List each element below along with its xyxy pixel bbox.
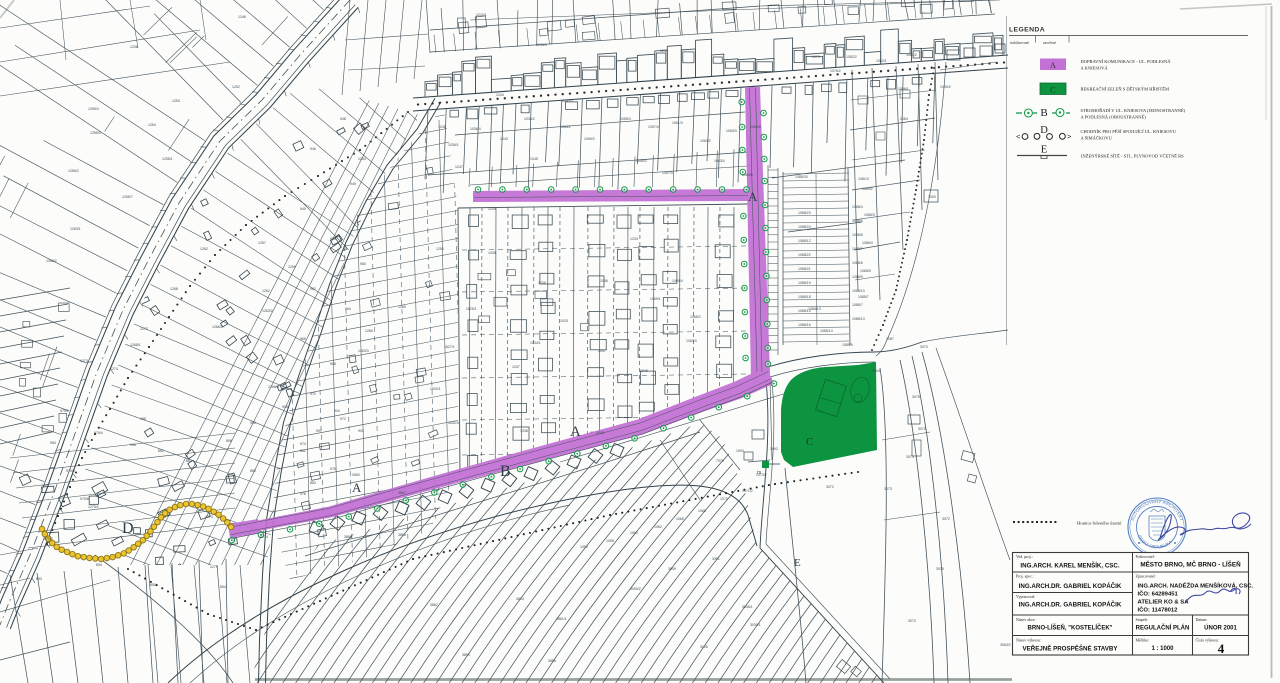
svg-text:1087: 1087 (886, 337, 894, 341)
svg-text:3072: 3072 (826, 485, 834, 489)
svg-text:1088/13: 1088/13 (852, 317, 865, 321)
svg-text:3049: 3049 (668, 567, 676, 571)
svg-text:1093: 1093 (736, 449, 744, 453)
svg-text:1045: 1045 (530, 157, 538, 161)
svg-text:1088/7: 1088/7 (852, 247, 863, 251)
svg-text:1263/3: 1263/3 (358, 349, 369, 353)
svg-text:1085/9: 1085/9 (842, 343, 853, 347)
svg-text:3072: 3072 (942, 517, 950, 521)
svg-text:3060: 3060 (352, 473, 360, 477)
svg-text:1263/2: 1263/2 (262, 309, 273, 313)
svg-text:908: 908 (282, 405, 288, 409)
svg-text:7070: 7070 (716, 459, 724, 463)
svg-text:1085/4: 1085/4 (862, 241, 873, 245)
svg-text:Vypracoval:: Vypracoval: (1016, 594, 1035, 599)
svg-text:Název výkresu:: Název výkresu: (1016, 638, 1041, 643)
svg-text:1055/1: 1055/1 (560, 125, 571, 129)
svg-text:1274: 1274 (110, 367, 118, 371)
svg-text:894: 894 (96, 563, 102, 567)
svg-text:1063/3: 1063/3 (726, 129, 737, 133)
svg-text:A: A (748, 189, 758, 204)
svg-text:1081/2: 1081/2 (906, 53, 917, 57)
svg-text:1275/1: 1275/1 (88, 505, 99, 509)
svg-text:1249: 1249 (488, 207, 496, 211)
svg-text:854: 854 (220, 585, 226, 589)
svg-text:3073: 3073 (884, 487, 892, 491)
svg-text:1268/4: 1268/4 (268, 385, 279, 389)
svg-text:A: A (352, 480, 362, 495)
svg-text:1047: 1047 (598, 349, 606, 353)
svg-text:1090: 1090 (928, 195, 936, 199)
svg-text:1088/19: 1088/19 (798, 281, 811, 285)
svg-text:3859: 3859 (462, 653, 470, 657)
svg-text:4: 4 (1218, 641, 1225, 656)
svg-text:1084: 1084 (900, 117, 908, 121)
svg-text:3070: 3070 (918, 427, 926, 431)
svg-text:1081/3: 1081/3 (858, 177, 869, 181)
svg-text:1063/4: 1063/4 (714, 159, 725, 163)
svg-text:ATELIER KO & SA: ATELIER KO & SA (1138, 600, 1190, 606)
svg-text:959: 959 (330, 237, 336, 241)
svg-text:B: B (500, 463, 511, 480)
svg-text:898: 898 (226, 439, 232, 443)
svg-text:960: 960 (360, 262, 366, 266)
svg-text:883: 883 (310, 481, 316, 485)
svg-text:949: 949 (350, 182, 356, 186)
svg-text:1088/4: 1088/4 (852, 205, 863, 209)
svg-text:972: 972 (340, 417, 346, 421)
svg-text:C: C (806, 436, 813, 448)
svg-text:1088/10: 1088/10 (852, 289, 865, 293)
svg-text:DOPRAVNÍ KOMUNIKACE - UL. PODL: DOPRAVNÍ KOMUNIKACE - UL. PODLESNÁ (1081, 59, 1172, 64)
svg-text:996: 996 (130, 443, 136, 447)
svg-text:1262: 1262 (200, 247, 208, 251)
svg-text:INŽENÝRSKÉ SÍTĚ - STL. PLYNOVO: INŽENÝRSKÉ SÍTĚ - STL. PLYNOVOD VČETNĚ R… (1081, 154, 1184, 159)
svg-text:969/1: 969/1 (872, 369, 881, 373)
svg-text:D: D (122, 520, 134, 537)
svg-text:979/4: 979/4 (94, 431, 103, 435)
svg-text:3078: 3078 (912, 395, 920, 399)
svg-text:850: 850 (150, 583, 156, 587)
svg-text:1065/5: 1065/5 (860, 269, 871, 273)
svg-text:1627/1: 1627/1 (444, 345, 455, 349)
svg-text:1085/14: 1085/14 (820, 329, 833, 333)
svg-text:978: 978 (300, 492, 306, 496)
svg-text:1632/3: 1632/3 (448, 421, 459, 425)
svg-text:1057/4: 1057/4 (648, 125, 659, 129)
svg-text:MĚSTO BRNO, MČ BRNO - LÍŠEŇ: MĚSTO BRNO, MČ BRNO - LÍŠEŇ (1140, 560, 1241, 569)
svg-text:3863: 3863 (516, 597, 524, 601)
svg-text:1250: 1250 (358, 157, 366, 161)
svg-text:1055/3: 1055/3 (620, 117, 631, 121)
svg-text:1244: 1244 (496, 93, 504, 97)
svg-text:REGULAČNÍ PLÁN: REGULAČNÍ PLÁN (1136, 624, 1190, 632)
svg-text:1036: 1036 (538, 281, 546, 285)
svg-text:979/5: 979/5 (66, 469, 75, 473)
svg-text:904: 904 (334, 409, 340, 413)
svg-text:1034/2: 1034/2 (524, 117, 535, 121)
svg-text:Stupeň:: Stupeň: (1136, 617, 1148, 622)
svg-text:962: 962 (310, 287, 316, 291)
svg-text:1247: 1247 (455, 165, 463, 169)
svg-text:1035: 1035 (488, 251, 496, 255)
svg-text:879/3: 879/3 (44, 537, 53, 541)
svg-text:Pořizovatel:: Pořizovatel: (1136, 554, 1155, 559)
svg-text:1070: 1070 (720, 497, 728, 501)
svg-text:CHODNÍK PRO PĚŠÍ SPOJUJÍCÍ UL.: CHODNÍK PRO PĚŠÍ SPOJUJÍCÍ UL. KNIESOVU (1081, 129, 1177, 134)
svg-text:3862: 3862 (430, 603, 438, 607)
svg-text:1274: 1274 (260, 535, 268, 539)
svg-text:3063/2: 3063/2 (1000, 643, 1011, 647)
svg-text:1632/1: 1632/1 (430, 387, 441, 391)
svg-text:1262: 1262 (262, 289, 270, 293)
svg-text:1069/1: 1069/1 (650, 297, 661, 301)
svg-text:>: > (1067, 132, 1072, 141)
svg-text:ING.ARCH. KAREL MENŠÍK, CSC.: ING.ARCH. KAREL MENŠÍK, CSC. (1020, 562, 1120, 570)
svg-text:3070: 3070 (908, 619, 916, 623)
svg-text:Zpracovatel:: Zpracovatel: (1136, 574, 1156, 579)
svg-text:1256/2: 1256/2 (68, 169, 79, 173)
svg-text:1085/3: 1085/3 (864, 213, 875, 217)
svg-text:1069/4: 1069/4 (672, 279, 683, 283)
svg-text:1257: 1257 (258, 241, 266, 245)
svg-text:905: 905 (250, 421, 256, 425)
svg-text:1088/18: 1088/18 (798, 295, 811, 299)
svg-text:1088/22: 1088/22 (798, 253, 811, 257)
svg-text:3866: 3866 (398, 533, 406, 537)
svg-text:1082/2: 1082/2 (846, 55, 857, 59)
svg-text:1263/1: 1263/1 (70, 227, 81, 231)
svg-text:1236: 1236 (130, 45, 138, 49)
svg-text:1085/13: 1085/13 (808, 307, 821, 311)
svg-text:1049: 1049 (640, 369, 648, 373)
svg-text:1243/3: 1243/3 (562, 99, 573, 103)
svg-text:907: 907 (316, 429, 322, 433)
svg-text:3868: 3868 (344, 535, 352, 539)
svg-text:1266: 1266 (365, 329, 373, 333)
svg-text:893: 893 (36, 577, 42, 581)
svg-text:1063/8: 1063/8 (750, 125, 761, 129)
svg-text:1233: 1233 (630, 237, 638, 241)
svg-text:A: A (1050, 60, 1057, 70)
svg-text:1043: 1043 (500, 137, 508, 141)
svg-text:1046: 1046 (600, 279, 608, 283)
svg-text:Měřítko:: Měřítko: (1136, 638, 1150, 643)
svg-text:ING.ARCH.DR. GABRIEL KOPÁČIK: ING.ARCH.DR. GABRIEL KOPÁČIK (1019, 602, 1122, 609)
svg-text:1259: 1259 (288, 265, 296, 269)
svg-text:1255/7: 1255/7 (122, 195, 133, 199)
svg-text:STROMOŘADÍ V UL. KNIESOVA (JED: STROMOŘADÍ V UL. KNIESOVA (JEDNOSTRANNÉ) (1081, 108, 1186, 113)
svg-text:1268/1: 1268/1 (130, 343, 141, 347)
svg-text:1076/2: 1076/2 (830, 69, 841, 73)
svg-text:1063/2: 1063/2 (700, 139, 711, 143)
svg-text:VEŘEJNĚ PROSPĚŠNÉ STAVBY: VEŘEJNĚ PROSPĚŠNÉ STAVBY (1022, 645, 1118, 653)
svg-text:3861/1: 3861/1 (556, 617, 567, 621)
svg-text:1088/24: 1088/24 (798, 225, 811, 229)
svg-text:1068: 1068 (698, 509, 706, 513)
svg-text:1273: 1273 (205, 515, 213, 519)
svg-text:Název akce:: Název akce: (1016, 617, 1036, 622)
svg-text:1061/3: 1061/3 (672, 121, 683, 125)
svg-text:1090/2: 1090/2 (940, 85, 951, 89)
svg-text:IČO: 11478012: IČO: 11478012 (1138, 607, 1179, 614)
svg-text:1058: 1058 (606, 539, 614, 543)
svg-text:stabilizované: stabilizované (1010, 41, 1029, 45)
svg-text:1088/12: 1088/12 (798, 239, 811, 243)
svg-text:1048: 1048 (596, 431, 604, 435)
svg-text:navržené: navržené (1043, 41, 1056, 45)
svg-text:940: 940 (300, 207, 306, 211)
svg-text:1088/16: 1088/16 (798, 323, 811, 327)
svg-text:B: B (1040, 107, 1047, 119)
svg-text:1255/1: 1255/1 (162, 157, 173, 161)
svg-text:1038: 1038 (520, 429, 528, 433)
svg-text:1265: 1265 (398, 305, 406, 309)
svg-text:A ŠIMÁČKOVU: A ŠIMÁČKOVU (1081, 136, 1113, 141)
svg-text:968: 968 (330, 362, 336, 366)
svg-text:1088/21: 1088/21 (798, 267, 811, 271)
svg-text:1079: 1079 (812, 55, 820, 59)
svg-text:BRNO-LÍŠEŇ, "KOSTELÍČEK": BRNO-LÍŠEŇ, "KOSTELÍČEK" (1027, 624, 1112, 632)
svg-text:976: 976 (330, 467, 336, 471)
svg-text:3028: 3028 (700, 645, 708, 649)
svg-text:852: 852 (158, 449, 164, 453)
svg-text:964: 964 (345, 307, 351, 311)
svg-text:A PODLESNÁ (OBOUSTRANNÉ): A PODLESNÁ (OBOUSTRANNÉ) (1081, 115, 1147, 120)
svg-text:REKREAČNÍ ZELEŇ S DĚTSKÝM HŘIŠ: REKREAČNÍ ZELEŇ S DĚTSKÝM HŘIŠTĚM (1081, 87, 1170, 92)
svg-text:1266/1: 1266/1 (212, 325, 223, 329)
svg-text:1253: 1253 (172, 99, 180, 103)
svg-text:1246: 1246 (238, 15, 246, 19)
svg-text:1037: 1037 (512, 365, 520, 369)
svg-text:1243/5: 1243/5 (536, 43, 547, 47)
svg-text:1085/2: 1085/2 (862, 187, 873, 191)
svg-text:3075: 3075 (936, 567, 944, 571)
svg-text:1063/6: 1063/6 (742, 173, 753, 177)
svg-text:1059/2: 1059/2 (584, 137, 595, 141)
svg-text:1082/1: 1082/1 (876, 59, 887, 63)
svg-text:1063/4: 1063/4 (686, 339, 697, 343)
svg-text:1248: 1248 (438, 125, 446, 129)
svg-text:1036/1: 1036/1 (448, 143, 459, 147)
svg-text:1065: 1065 (676, 517, 684, 521)
svg-text:1088/6: 1088/6 (852, 261, 863, 265)
svg-text:3073: 3073 (906, 455, 914, 459)
svg-text:1088/8: 1088/8 (852, 233, 863, 237)
svg-text:1255/4: 1255/4 (88, 107, 99, 111)
svg-text:1254: 1254 (148, 123, 156, 127)
svg-text:1252: 1252 (232, 85, 240, 89)
svg-text:Ved. proj.:: Ved. proj.: (1016, 554, 1033, 559)
svg-text:988: 988 (140, 417, 146, 421)
svg-text:1088/23: 1088/23 (798, 211, 811, 215)
svg-text:Číslo výkresu:: Číslo výkresu: (1196, 638, 1219, 643)
svg-text:1279: 1279 (210, 565, 218, 569)
svg-text:1057/3: 1057/3 (662, 171, 673, 175)
svg-text:1055/2: 1055/2 (636, 159, 647, 163)
svg-text:LEGENDA: LEGENDA (1009, 27, 1045, 34)
svg-text:946: 946 (310, 147, 316, 151)
svg-text:1071/2: 1071/2 (742, 489, 753, 493)
svg-text:1062: 1062 (654, 525, 662, 529)
svg-text:A: A (570, 424, 581, 440)
svg-text:Datum:: Datum: (1196, 617, 1208, 622)
svg-text:1272: 1272 (140, 327, 148, 331)
svg-text:1088/20: 1088/20 (795, 175, 808, 179)
svg-text:A KNIESOVÁ: A KNIESOVÁ (1081, 66, 1109, 71)
svg-text:979/6: 979/6 (80, 497, 89, 501)
svg-text:979/1: 979/1 (60, 409, 69, 413)
svg-text:1 : 1000: 1 : 1000 (1151, 646, 1174, 652)
svg-text:IČO: 64289451: IČO: 64289451 (1138, 591, 1179, 598)
svg-text:1242/1: 1242/1 (476, 13, 487, 17)
svg-text:1085/7: 1085/7 (858, 295, 869, 299)
svg-text:887: 887 (186, 459, 192, 463)
svg-text:C: C (1050, 85, 1056, 95)
svg-text:1230: 1230 (660, 49, 668, 53)
svg-text:1088/7: 1088/7 (852, 303, 863, 307)
svg-text:889: 889 (250, 469, 256, 473)
svg-text:1034/1: 1034/1 (530, 341, 541, 345)
svg-text:3858: 3858 (548, 659, 556, 663)
svg-text:1268: 1268 (170, 287, 178, 291)
svg-text:1073/2: 1073/2 (756, 473, 767, 477)
svg-text:1052: 1052 (580, 545, 588, 549)
svg-text:1092: 1092 (770, 447, 778, 451)
svg-text:Proj. spec.:: Proj. spec.: (1016, 574, 1034, 579)
svg-text:1273: 1273 (80, 359, 88, 363)
svg-text:861: 861 (300, 449, 306, 453)
svg-text:983: 983 (50, 441, 56, 445)
svg-text:Hranice řešeného území: Hranice řešeného území (1077, 521, 1122, 526)
svg-text:903: 903 (358, 429, 364, 433)
svg-text:1086/1: 1086/1 (898, 87, 909, 91)
svg-text:1088/9: 1088/9 (852, 275, 863, 279)
svg-text:E: E (794, 557, 801, 569)
svg-text:<: < (1016, 132, 1021, 141)
svg-text:3867: 3867 (398, 491, 406, 495)
svg-text:1033: 1033 (560, 319, 568, 323)
svg-text:3036/1: 3036/1 (742, 605, 753, 609)
svg-text:1065/2: 1065/2 (690, 315, 701, 319)
svg-text:3070: 3070 (920, 345, 928, 349)
svg-text:3035/1: 3035/1 (750, 623, 761, 627)
svg-text:1256: 1256 (436, 247, 444, 251)
svg-text:1266/2: 1266/2 (46, 259, 57, 263)
svg-text:ING.ARCH.DR. GABRIEL KOPÁČIK: ING.ARCH.DR. GABRIEL KOPÁČIK (1019, 583, 1122, 590)
svg-text:1255/3: 1255/3 (90, 131, 101, 135)
svg-text:974: 974 (300, 442, 306, 446)
svg-text:1625/1: 1625/1 (466, 307, 477, 311)
svg-text:970: 970 (310, 392, 316, 396)
svg-text:3050/2: 3050/2 (630, 587, 641, 591)
svg-text:1036/4: 1036/4 (470, 127, 481, 131)
svg-text:1088/5: 1088/5 (852, 219, 863, 223)
svg-text:ÚNOR 2001: ÚNOR 2001 (1204, 625, 1237, 632)
svg-text:948: 948 (340, 117, 346, 121)
svg-text:E: E (1041, 145, 1047, 156)
svg-text:965: 965 (300, 337, 306, 341)
svg-text:3051: 3051 (712, 557, 720, 561)
svg-text:1060: 1060 (630, 531, 638, 535)
